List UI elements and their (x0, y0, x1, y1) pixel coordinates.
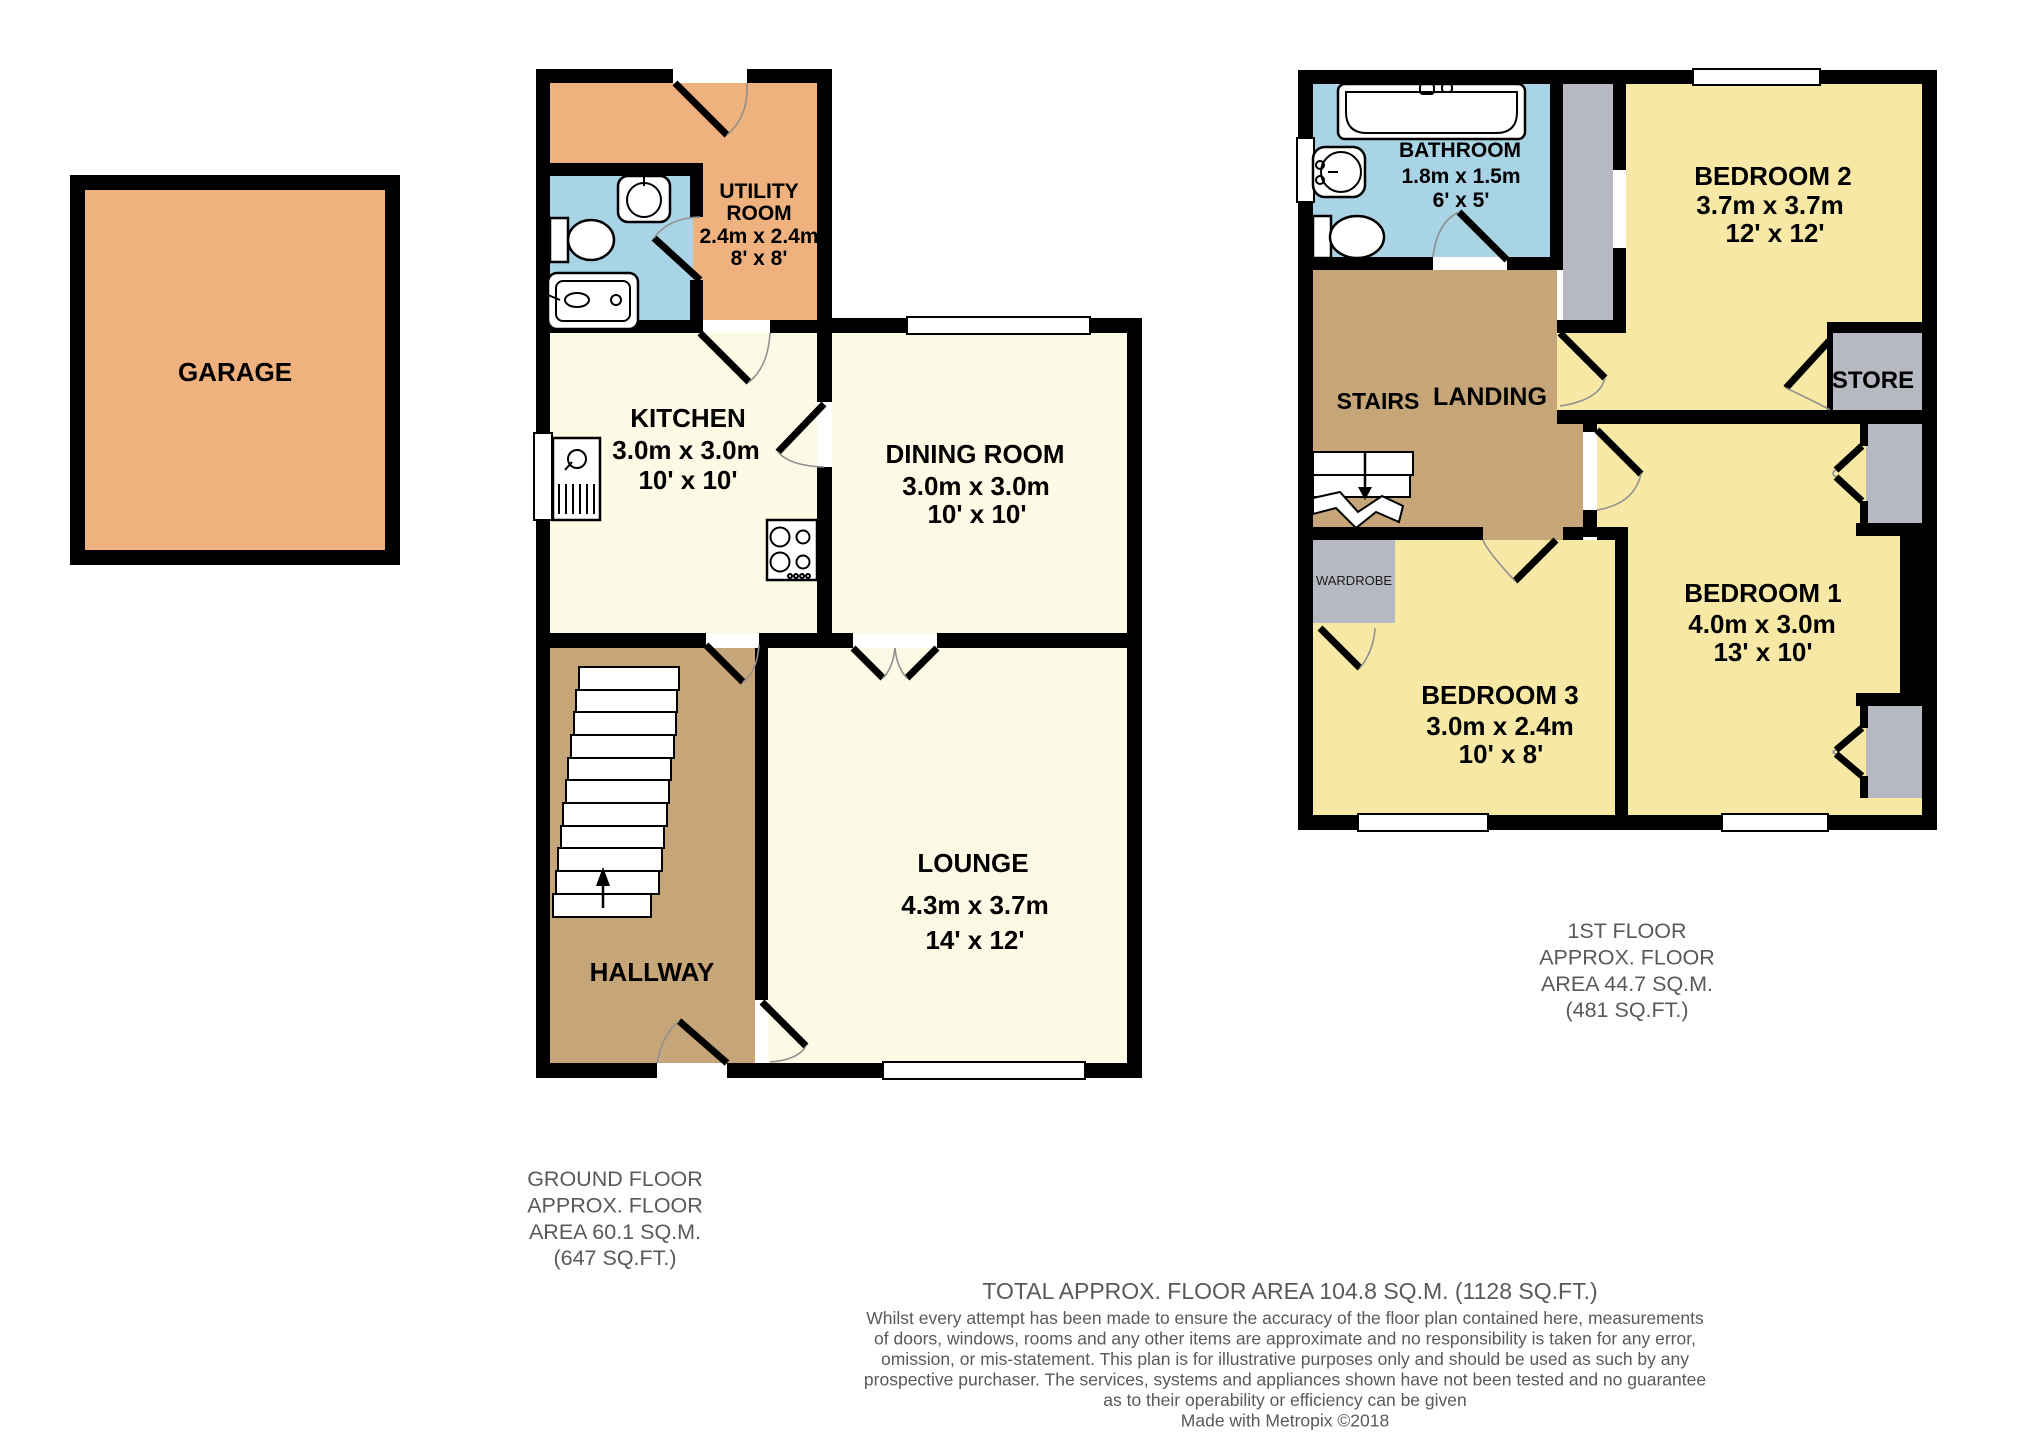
store-label: STORE (1832, 367, 1914, 394)
ground-caption-line-4: (647 SQ.FT.) (553, 1246, 676, 1270)
bathroom-dims-ft: 6' x 5' (1433, 189, 1490, 212)
dining-label: DINING ROOM (885, 439, 1064, 469)
floorplan-page: GARAGE (0, 0, 2025, 1441)
landing-label: LANDING (1433, 383, 1547, 411)
disclaimer-line-2: of doors, windows, rooms and any other i… (874, 1329, 1696, 1349)
bathroom-basin-icon (1313, 147, 1365, 197)
dining-dims-ft: 10' x 10' (927, 499, 1026, 529)
bedroom1-window (1722, 814, 1828, 831)
bathroom-dims-m: 1.8m x 1.5m (1401, 165, 1520, 188)
floorplan-canvas: GARAGE (0, 0, 2025, 1441)
bedroom3-label: BEDROOM 3 (1421, 680, 1578, 710)
lounge-window (883, 1062, 1085, 1079)
first-floor-plan: BATHROOM 1.8m x 1.5m 6' x 5' BEDROOM 2 3… (1297, 69, 1937, 831)
bathroom-toilet-icon (1313, 216, 1384, 258)
disclaimer-line-3: omission, or mis-statement. This plan is… (881, 1349, 1689, 1369)
first-caption-line-2: APPROX. FLOOR (1539, 946, 1715, 970)
lounge-dims-ft: 14' x 12' (925, 925, 1024, 955)
first-floor-caption: 1ST FLOOR APPROX. FLOOR AREA 44.7 SQ.M. … (1539, 919, 1715, 1022)
bathroom-label: BATHROOM (1399, 139, 1521, 162)
dining-dims-m: 3.0m x 3.0m (902, 471, 1049, 501)
bedroom2-dims-m: 3.7m x 3.7m (1696, 190, 1843, 220)
first-caption-line-3: AREA 44.7 SQ.M. (1541, 972, 1713, 996)
wc-basin-icon (618, 176, 670, 222)
bathroom-window (1297, 138, 1314, 202)
bedroom2-label: BEDROOM 2 (1694, 161, 1851, 191)
utility-label-1: UTILITY (719, 180, 798, 203)
garage-room: GARAGE (70, 175, 400, 565)
disclaimer-line-4: prospective purchaser. The services, sys… (864, 1370, 1706, 1390)
bedroom1-cupboard-top-floor (1866, 424, 1922, 523)
first-caption-line-1: 1ST FLOOR (1567, 919, 1686, 943)
kitchen-window (534, 433, 552, 520)
bedroom3-window (1358, 814, 1488, 831)
stairs-label: STAIRS (1337, 388, 1420, 414)
lounge-label: LOUNGE (917, 848, 1028, 878)
total-area-line: TOTAL APPROX. FLOOR AREA 104.8 SQ.M. (11… (982, 1278, 1597, 1304)
lounge-dims-m: 4.3m x 3.7m (901, 890, 1048, 920)
kitchen-dims-m: 3.0m x 3.0m (612, 435, 759, 465)
ground-floor-caption: GROUND FLOOR APPROX. FLOOR AREA 60.1 SQ.… (527, 1167, 703, 1270)
kitchen-hob-icon (767, 520, 817, 580)
footer-block: TOTAL APPROX. FLOOR AREA 104.8 SQ.M. (11… (864, 1278, 1706, 1431)
bedroom1-label: BEDROOM 1 (1684, 578, 1841, 608)
cupboard-floor (1563, 84, 1613, 320)
bedroom2-window (1693, 69, 1820, 85)
kitchen-dims-ft: 10' x 10' (638, 465, 737, 495)
first-caption-line-4: (481 SQ.FT.) (1565, 998, 1688, 1022)
garage-label: GARAGE (178, 357, 292, 387)
kitchen-sink-icon (553, 438, 600, 520)
bedroom2-dims-ft: 12' x 12' (1725, 218, 1824, 248)
disclaimer-line-5: as to their operability or efficiency ca… (1103, 1390, 1467, 1410)
ground-caption-line-2: APPROX. FLOOR (527, 1194, 703, 1218)
wardrobe-label: WARDROBE (1316, 573, 1392, 588)
bedroom3-dims-ft: 10' x 8' (1459, 739, 1544, 769)
utility-dims-m: 2.4m x 2.4m (699, 225, 818, 248)
ground-caption-line-1: GROUND FLOOR (527, 1167, 703, 1191)
ground-caption-line-3: AREA 60.1 SQ.M. (529, 1220, 701, 1244)
bath-icon (1338, 84, 1525, 139)
utility-label-2: ROOM (726, 202, 791, 225)
bedroom1-cupboard-bottom-floor (1866, 706, 1922, 798)
ground-floor-plan: UTILITY ROOM 2.4m x 2.4m 8' x 8' KITCHEN… (534, 69, 1142, 1079)
metropix-credit: Made with Metropix ©2018 (1181, 1411, 1389, 1431)
bedroom1-dims-m: 4.0m x 3.0m (1688, 609, 1835, 639)
utility-dims-ft: 8' x 8' (731, 247, 788, 270)
dining-window (907, 317, 1090, 334)
wc-bath-icon (548, 273, 638, 329)
bedroom1-dims-ft: 13' x 10' (1713, 637, 1812, 667)
wc-toilet-icon (550, 218, 614, 262)
disclaimer-line-1: Whilst every attempt has been made to en… (866, 1308, 1704, 1328)
kitchen-label: KITCHEN (630, 403, 746, 433)
hallway-label: HALLWAY (590, 957, 715, 987)
bedroom3-dims-m: 3.0m x 2.4m (1426, 711, 1573, 741)
